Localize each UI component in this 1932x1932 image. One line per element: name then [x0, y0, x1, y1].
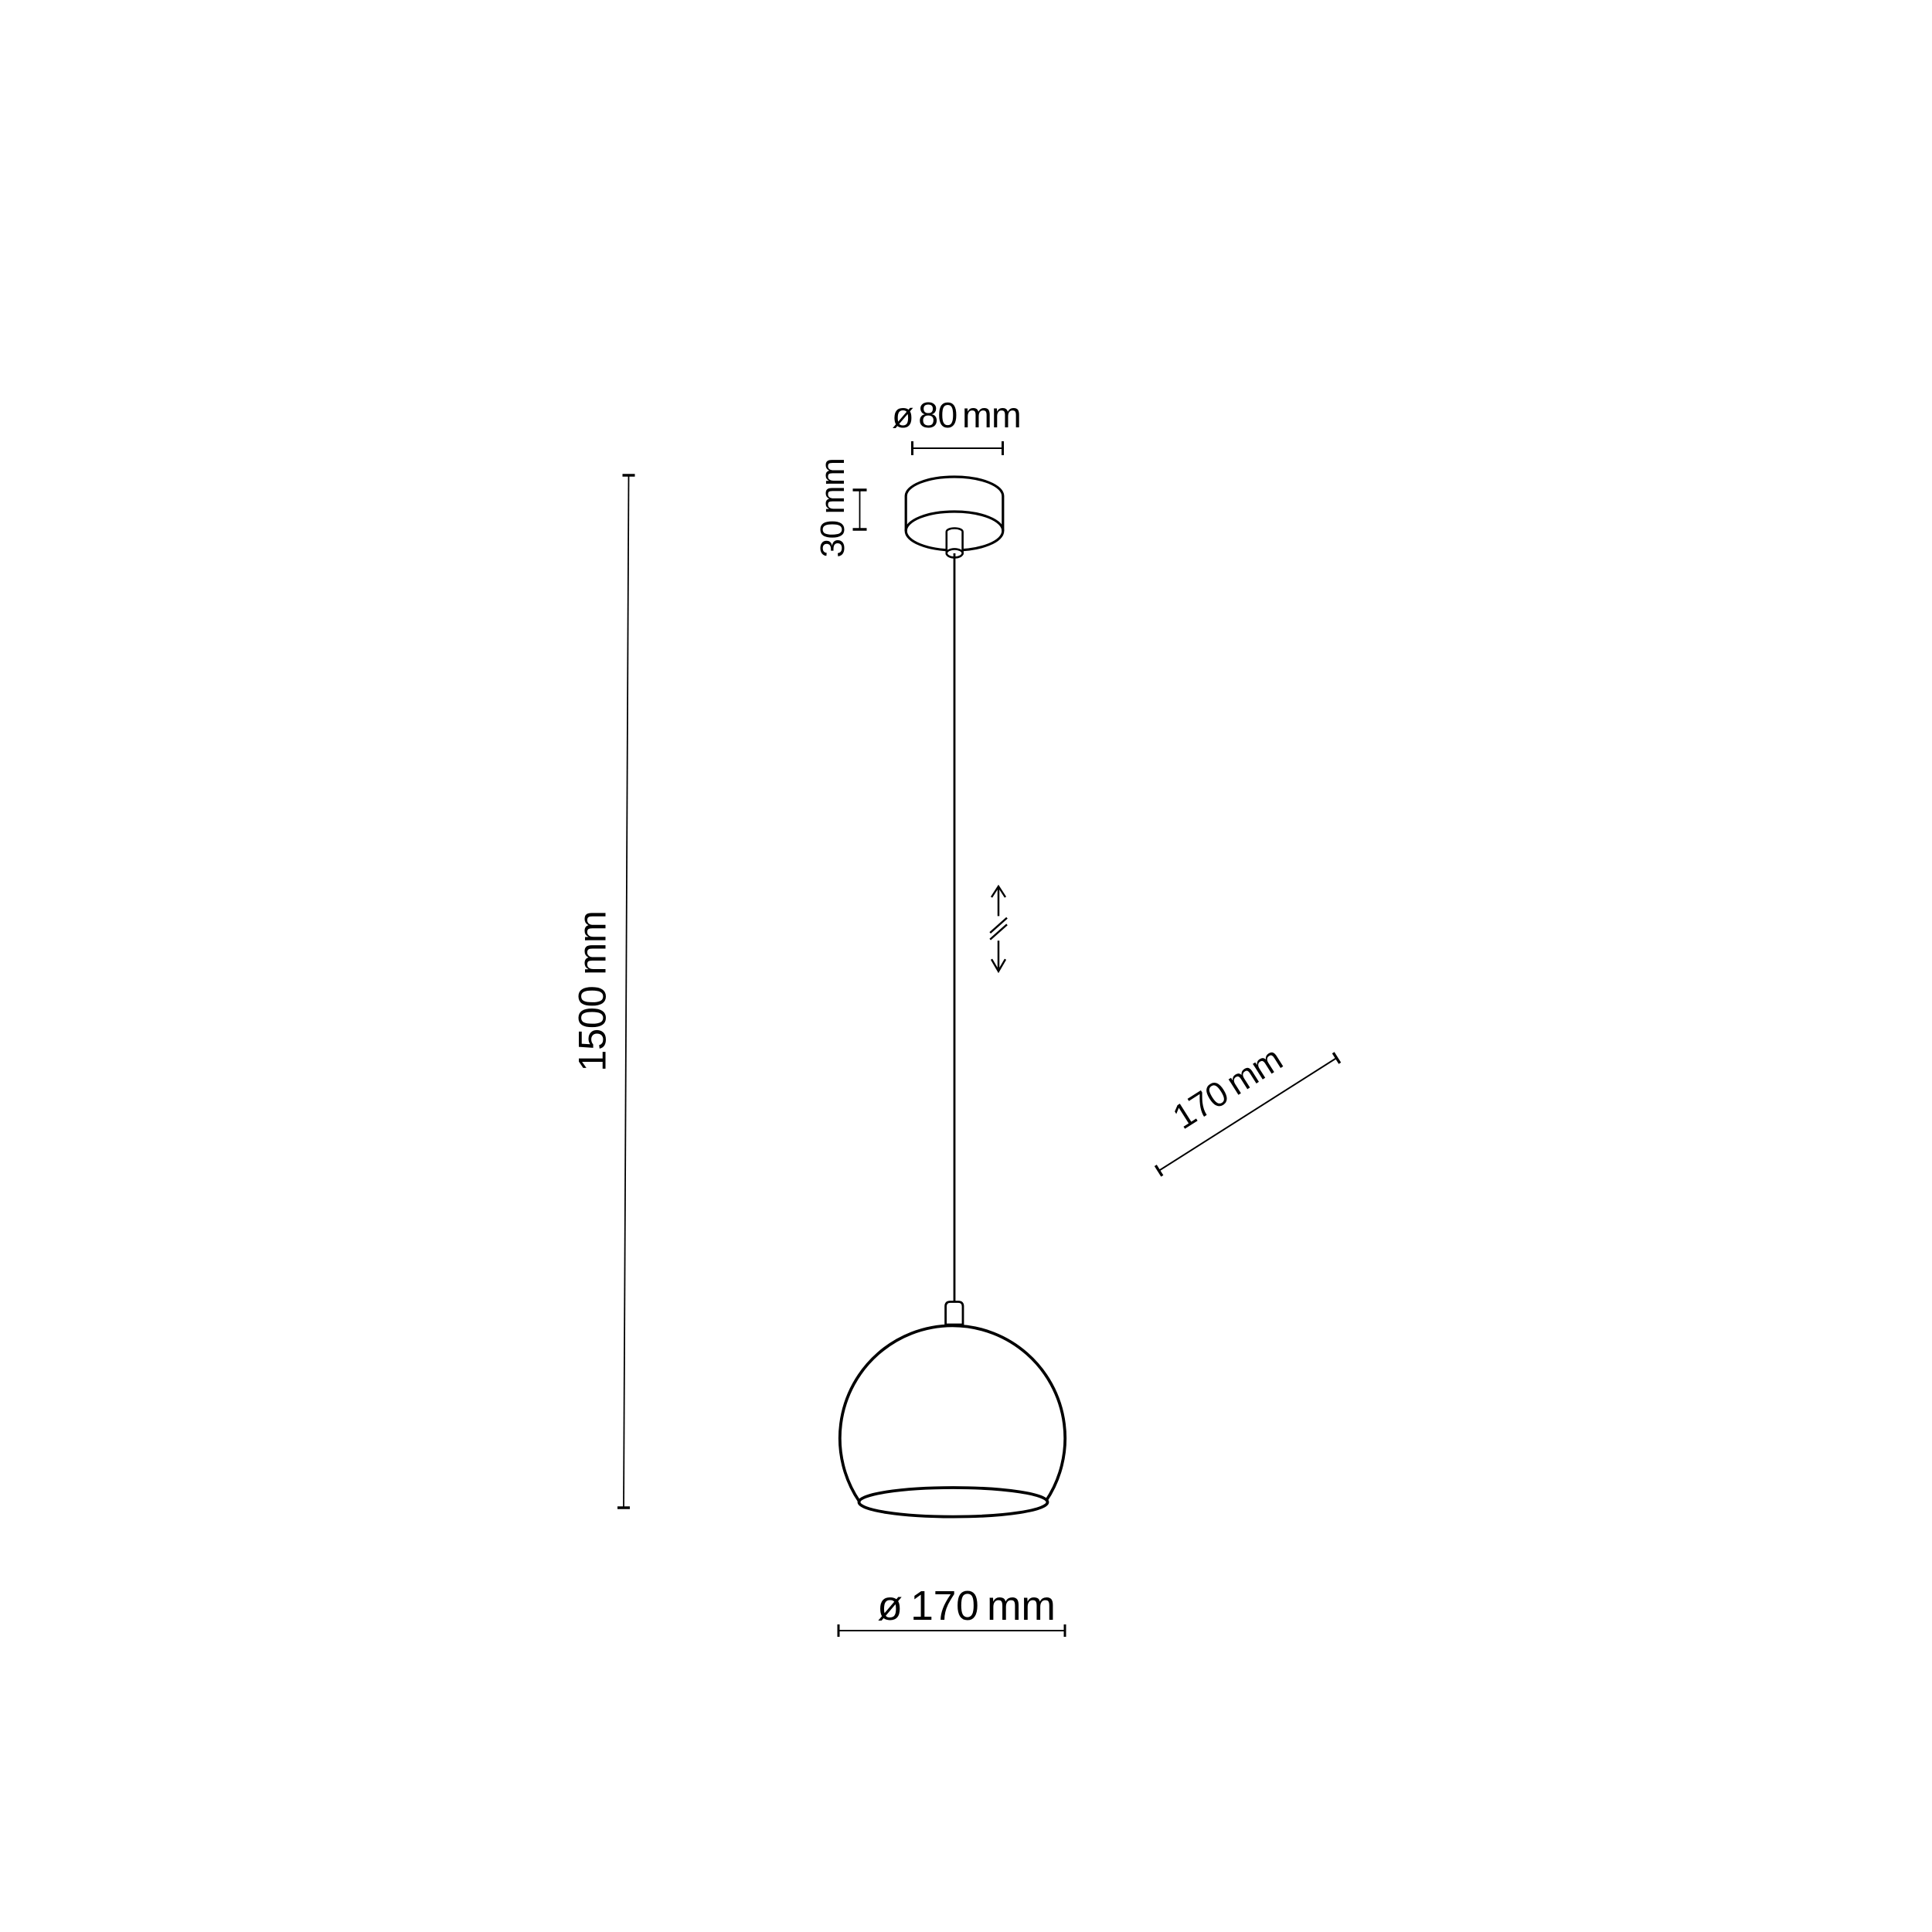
svg-text:ø 170 mm: ø 170 mm	[877, 1583, 1055, 1629]
svg-text:1500 mm: 1500 mm	[570, 910, 614, 1071]
svg-text:30 mm: 30 mm	[814, 458, 852, 558]
svg-text:ø 80 mm: ø 80 mm	[892, 395, 1021, 435]
